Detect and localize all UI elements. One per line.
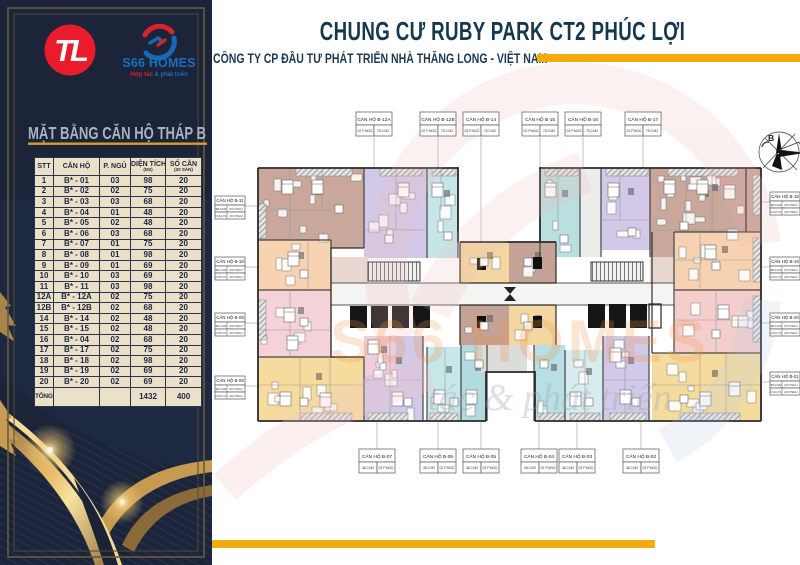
svg-text:02 P.NGỦ: 02 P.NGỦ xyxy=(482,465,498,470)
svg-text:02 P.NGỦ: 02 P.NGỦ xyxy=(642,465,658,470)
svg-text:02 P.NGỦ: 02 P.NGỦ xyxy=(421,128,437,133)
svg-text:03 P.NGỦ: 03 P.NGỦ xyxy=(229,267,242,272)
svg-text:MẶT BẰNG CĂN HỘ THÁP B: MẶT BẰNG CĂN HỘ THÁP B xyxy=(28,122,206,143)
svg-text:CỬA 7A: CỬA 7A xyxy=(770,274,781,279)
svg-text:02 P.NGỦ: 02 P.NGỦ xyxy=(464,128,480,133)
svg-text:CĂN HỘ B-14: CĂN HỘ B-14 xyxy=(466,116,496,123)
svg-text:48.0 M2: 48.0 M2 xyxy=(466,466,478,470)
svg-text:48.0 M2: 48.0 M2 xyxy=(524,466,536,470)
svg-text:02 P.NGỦ: 02 P.NGỦ xyxy=(578,465,594,470)
svg-text:CỬA 7A: CỬA 7A xyxy=(215,274,226,279)
svg-text:03 P.NGỦ: 03 P.NGỦ xyxy=(784,323,797,328)
svg-text:98.0 M2: 98.0 M2 xyxy=(216,324,227,328)
svg-text:CĂN HỘ B-07: CĂN HỘ B-07 xyxy=(362,453,392,460)
svg-text:02 P.NGỦ: 02 P.NGỦ xyxy=(439,465,455,470)
svg-text:CĂN HỘ B-04: CĂN HỘ B-04 xyxy=(524,453,554,460)
svg-text:S66 HOMES: S66 HOMES xyxy=(122,56,195,70)
svg-text:98.0 M2: 98.0 M2 xyxy=(771,324,782,328)
svg-text:02 P.NGỦ: 02 P.NGỦ xyxy=(566,128,582,133)
svg-text:CĂN HỘ B-17: CĂN HỘ B-17 xyxy=(628,116,658,123)
svg-text:CỬA 7A: CỬA 7A xyxy=(770,389,781,394)
svg-text:03 P.NGỦ: 03 P.NGỦ xyxy=(784,382,797,387)
svg-text:02 P.NGỦ: 02 P.NGỦ xyxy=(626,128,642,133)
svg-text:48.0 M2: 48.0 M2 xyxy=(362,466,374,470)
svg-text:20 P.NGỦ: 20 P.NGỦ xyxy=(229,330,242,335)
svg-text:CĂN HỘ B-15: CĂN HỘ B-15 xyxy=(525,116,555,123)
svg-text:CĂN HỘ B-12B: CĂN HỘ B-12B xyxy=(421,116,454,123)
svg-text:98.0 M2: 98.0 M2 xyxy=(216,207,227,211)
svg-text:20 P.NGỦ: 20 P.NGỦ xyxy=(229,393,242,398)
svg-text:CĂN HỘ B-19: CĂN HỘ B-19 xyxy=(771,259,799,264)
svg-text:98.0 M2: 98.0 M2 xyxy=(771,383,782,387)
svg-text:CĂN HỘ B-11: CĂN HỘ B-11 xyxy=(216,198,244,203)
svg-text:CỬA 7A: CỬA 7A xyxy=(215,393,226,398)
svg-text:03 P.NGỦ: 03 P.NGỦ xyxy=(229,386,242,391)
svg-text:CĂN HỘ B-08: CĂN HỘ B-08 xyxy=(216,378,244,383)
svg-text:48.0 M2: 48.0 M2 xyxy=(626,466,638,470)
svg-text:20 P.NGỦ: 20 P.NGỦ xyxy=(784,274,797,279)
svg-text:75.0 M2: 75.0 M2 xyxy=(543,129,555,133)
svg-text:tác & phát triển: tác & phát triển xyxy=(428,377,672,419)
svg-text:03 P.NGỦ: 03 P.NGỦ xyxy=(784,202,797,207)
svg-text:CỬA 7A: CỬA 7A xyxy=(215,330,226,335)
svg-text:98.0 M2: 98.0 M2 xyxy=(216,387,227,391)
svg-text:75.0 M2: 75.0 M2 xyxy=(484,129,496,133)
svg-text:20 P.NGỦ: 20 P.NGỦ xyxy=(784,330,797,335)
svg-text:Hợp tác & phát triển: Hợp tác & phát triển xyxy=(130,71,188,78)
svg-text:20 P.NGỦ: 20 P.NGỦ xyxy=(784,389,797,394)
svg-text:02 P.NGỦ: 02 P.NGỦ xyxy=(357,128,373,133)
svg-text:S66 HOMES: S66 HOMES xyxy=(330,308,709,375)
svg-text:02 P.NGỦ: 02 P.NGỦ xyxy=(523,128,539,133)
svg-text:CĂN HỘ B-05: CĂN HỘ B-05 xyxy=(466,453,496,460)
svg-text:75.0 M2: 75.0 M2 xyxy=(586,129,598,133)
svg-text:CĂN HỘ B-06: CĂN HỘ B-06 xyxy=(423,453,453,460)
svg-text:98.0 M2: 98.0 M2 xyxy=(216,268,227,272)
svg-text:02 P.NGỦ: 02 P.NGỦ xyxy=(378,465,394,470)
svg-text:03 P.NGỦ: 03 P.NGỦ xyxy=(229,323,242,328)
svg-text:98.0 M2: 98.0 M2 xyxy=(771,203,782,207)
svg-text:CĂN HỘ B-18: CĂN HỘ B-18 xyxy=(771,194,799,199)
svg-text:03 P.NGỦ: 03 P.NGỦ xyxy=(229,206,242,211)
svg-text:CỬA 7A: CỬA 7A xyxy=(770,330,781,335)
svg-text:75.0 M2: 75.0 M2 xyxy=(441,129,453,133)
svg-text:20 P.NGỦ: 20 P.NGỦ xyxy=(784,209,797,214)
svg-text:20 P.NGỦ: 20 P.NGỦ xyxy=(229,213,242,218)
svg-text:CĂN HỘ B-02: CĂN HỘ B-02 xyxy=(626,453,656,460)
svg-text:98.0 M2: 98.0 M2 xyxy=(771,268,782,272)
svg-text:75.0 M2: 75.0 M2 xyxy=(377,129,389,133)
svg-text:CĂN HỘ B-16: CĂN HỘ B-16 xyxy=(568,116,598,123)
svg-text:CỬA 7A: CỬA 7A xyxy=(215,213,226,218)
svg-text:CĂN HỘ B-03: CĂN HỘ B-03 xyxy=(562,453,592,460)
svg-text:CĂN HỘ B-10: CĂN HỘ B-10 xyxy=(216,259,244,264)
svg-text:20 P.NGỦ: 20 P.NGỦ xyxy=(229,274,242,279)
svg-text:03 P.NGỦ: 03 P.NGỦ xyxy=(784,267,797,272)
svg-text:TL: TL xyxy=(54,33,88,68)
svg-text:CĂN HỘ B-20: CĂN HỘ B-20 xyxy=(771,315,799,320)
svg-text:CĂN HỘ B-09: CĂN HỘ B-09 xyxy=(216,315,244,320)
svg-text:75.0 M2: 75.0 M2 xyxy=(646,129,658,133)
svg-text:02 P.NGỦ: 02 P.NGỦ xyxy=(540,465,556,470)
svg-text:CỬA 7A: CỬA 7A xyxy=(770,209,781,214)
svg-text:CĂN HỘ B-12A: CĂN HỘ B-12A xyxy=(357,116,391,123)
svg-text:CĂN HỘ B-01: CĂN HỘ B-01 xyxy=(771,374,799,379)
svg-text:48.0 M2: 48.0 M2 xyxy=(423,466,435,470)
svg-text:48.0 M2: 48.0 M2 xyxy=(562,466,574,470)
